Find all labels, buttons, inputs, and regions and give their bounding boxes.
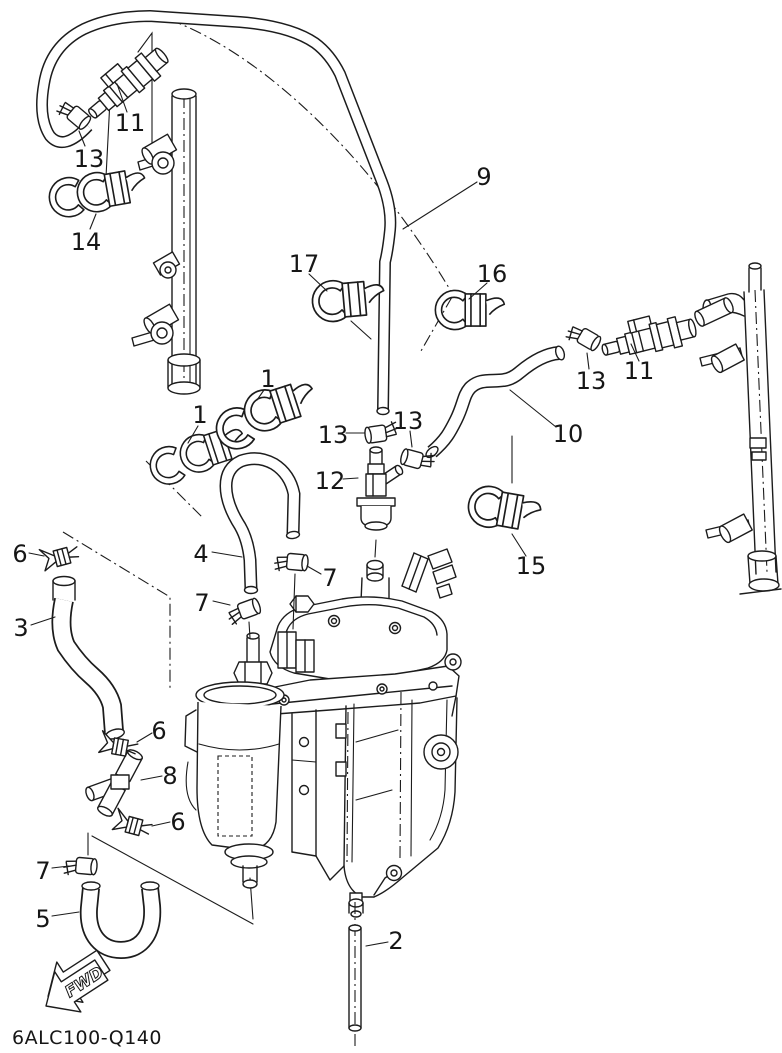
clamp-17 [311,276,386,323]
callout-13-center: 13 [393,407,424,435]
callout-5: 5 [35,905,50,933]
injector-spacer [693,297,735,328]
hose-3 [53,577,125,741]
wing-clamp-6-top [39,540,80,571]
callout-13-right: 13 [576,367,607,395]
callout-11-right: 11 [624,357,655,385]
callout-8: 8 [162,762,177,790]
exploded-parts-diagram: 11 13 14 9 17 16 13 11 10 1 1 13 13 12 1… [0,0,782,1053]
callout-16: 16 [477,260,508,288]
callout-6-mid: 6 [151,717,166,745]
callout-1-upper: 1 [260,365,275,393]
callout-15: 15 [516,552,547,580]
callout-7-top: 7 [322,564,337,592]
callout-6-top: 6 [12,540,27,568]
joint-12 [357,447,404,557]
hose-4 [226,459,300,594]
callout-2: 2 [388,927,403,955]
hose-clamp-13-right [565,322,603,354]
callout-3: 3 [13,614,28,642]
callout-12: 12 [315,467,346,495]
wing-clamp-6-bottom [112,808,153,839]
callout-13-center-left: 13 [318,421,349,449]
callout-17: 17 [289,250,320,278]
callout-7-bottom: 7 [35,857,50,885]
callout-10: 10 [553,420,584,448]
callout-7-left: 7 [194,589,209,617]
hose-10 [424,345,566,459]
tee-joint-8 [84,748,143,818]
hose-5 [82,882,159,950]
callout-labels: 11 13 14 9 17 16 13 11 10 1 1 13 13 12 1… [12,109,654,955]
clamp-16 [435,290,504,329]
callout-11-left: 11 [115,109,146,137]
clamp-1-upper [239,375,320,436]
parts-diagram-page: 11 13 14 9 17 16 13 11 10 1 1 13 13 12 1… [0,0,782,1053]
hose-clamp-7-left [226,597,263,625]
hose-clamp-7-top [274,552,308,573]
pipe-2 [349,902,361,1048]
clamp-15 [465,483,543,536]
callout-4: 4 [193,540,208,568]
callout-13-top-left: 13 [74,145,105,173]
hose-9 [42,16,390,415]
callout-9: 9 [476,163,491,191]
callout-6-bottom: 6 [170,808,185,836]
callout-14: 14 [71,228,102,256]
callout-1-lower: 1 [192,401,207,429]
diagram-code: 6ALC100-Q140 [12,1027,162,1049]
